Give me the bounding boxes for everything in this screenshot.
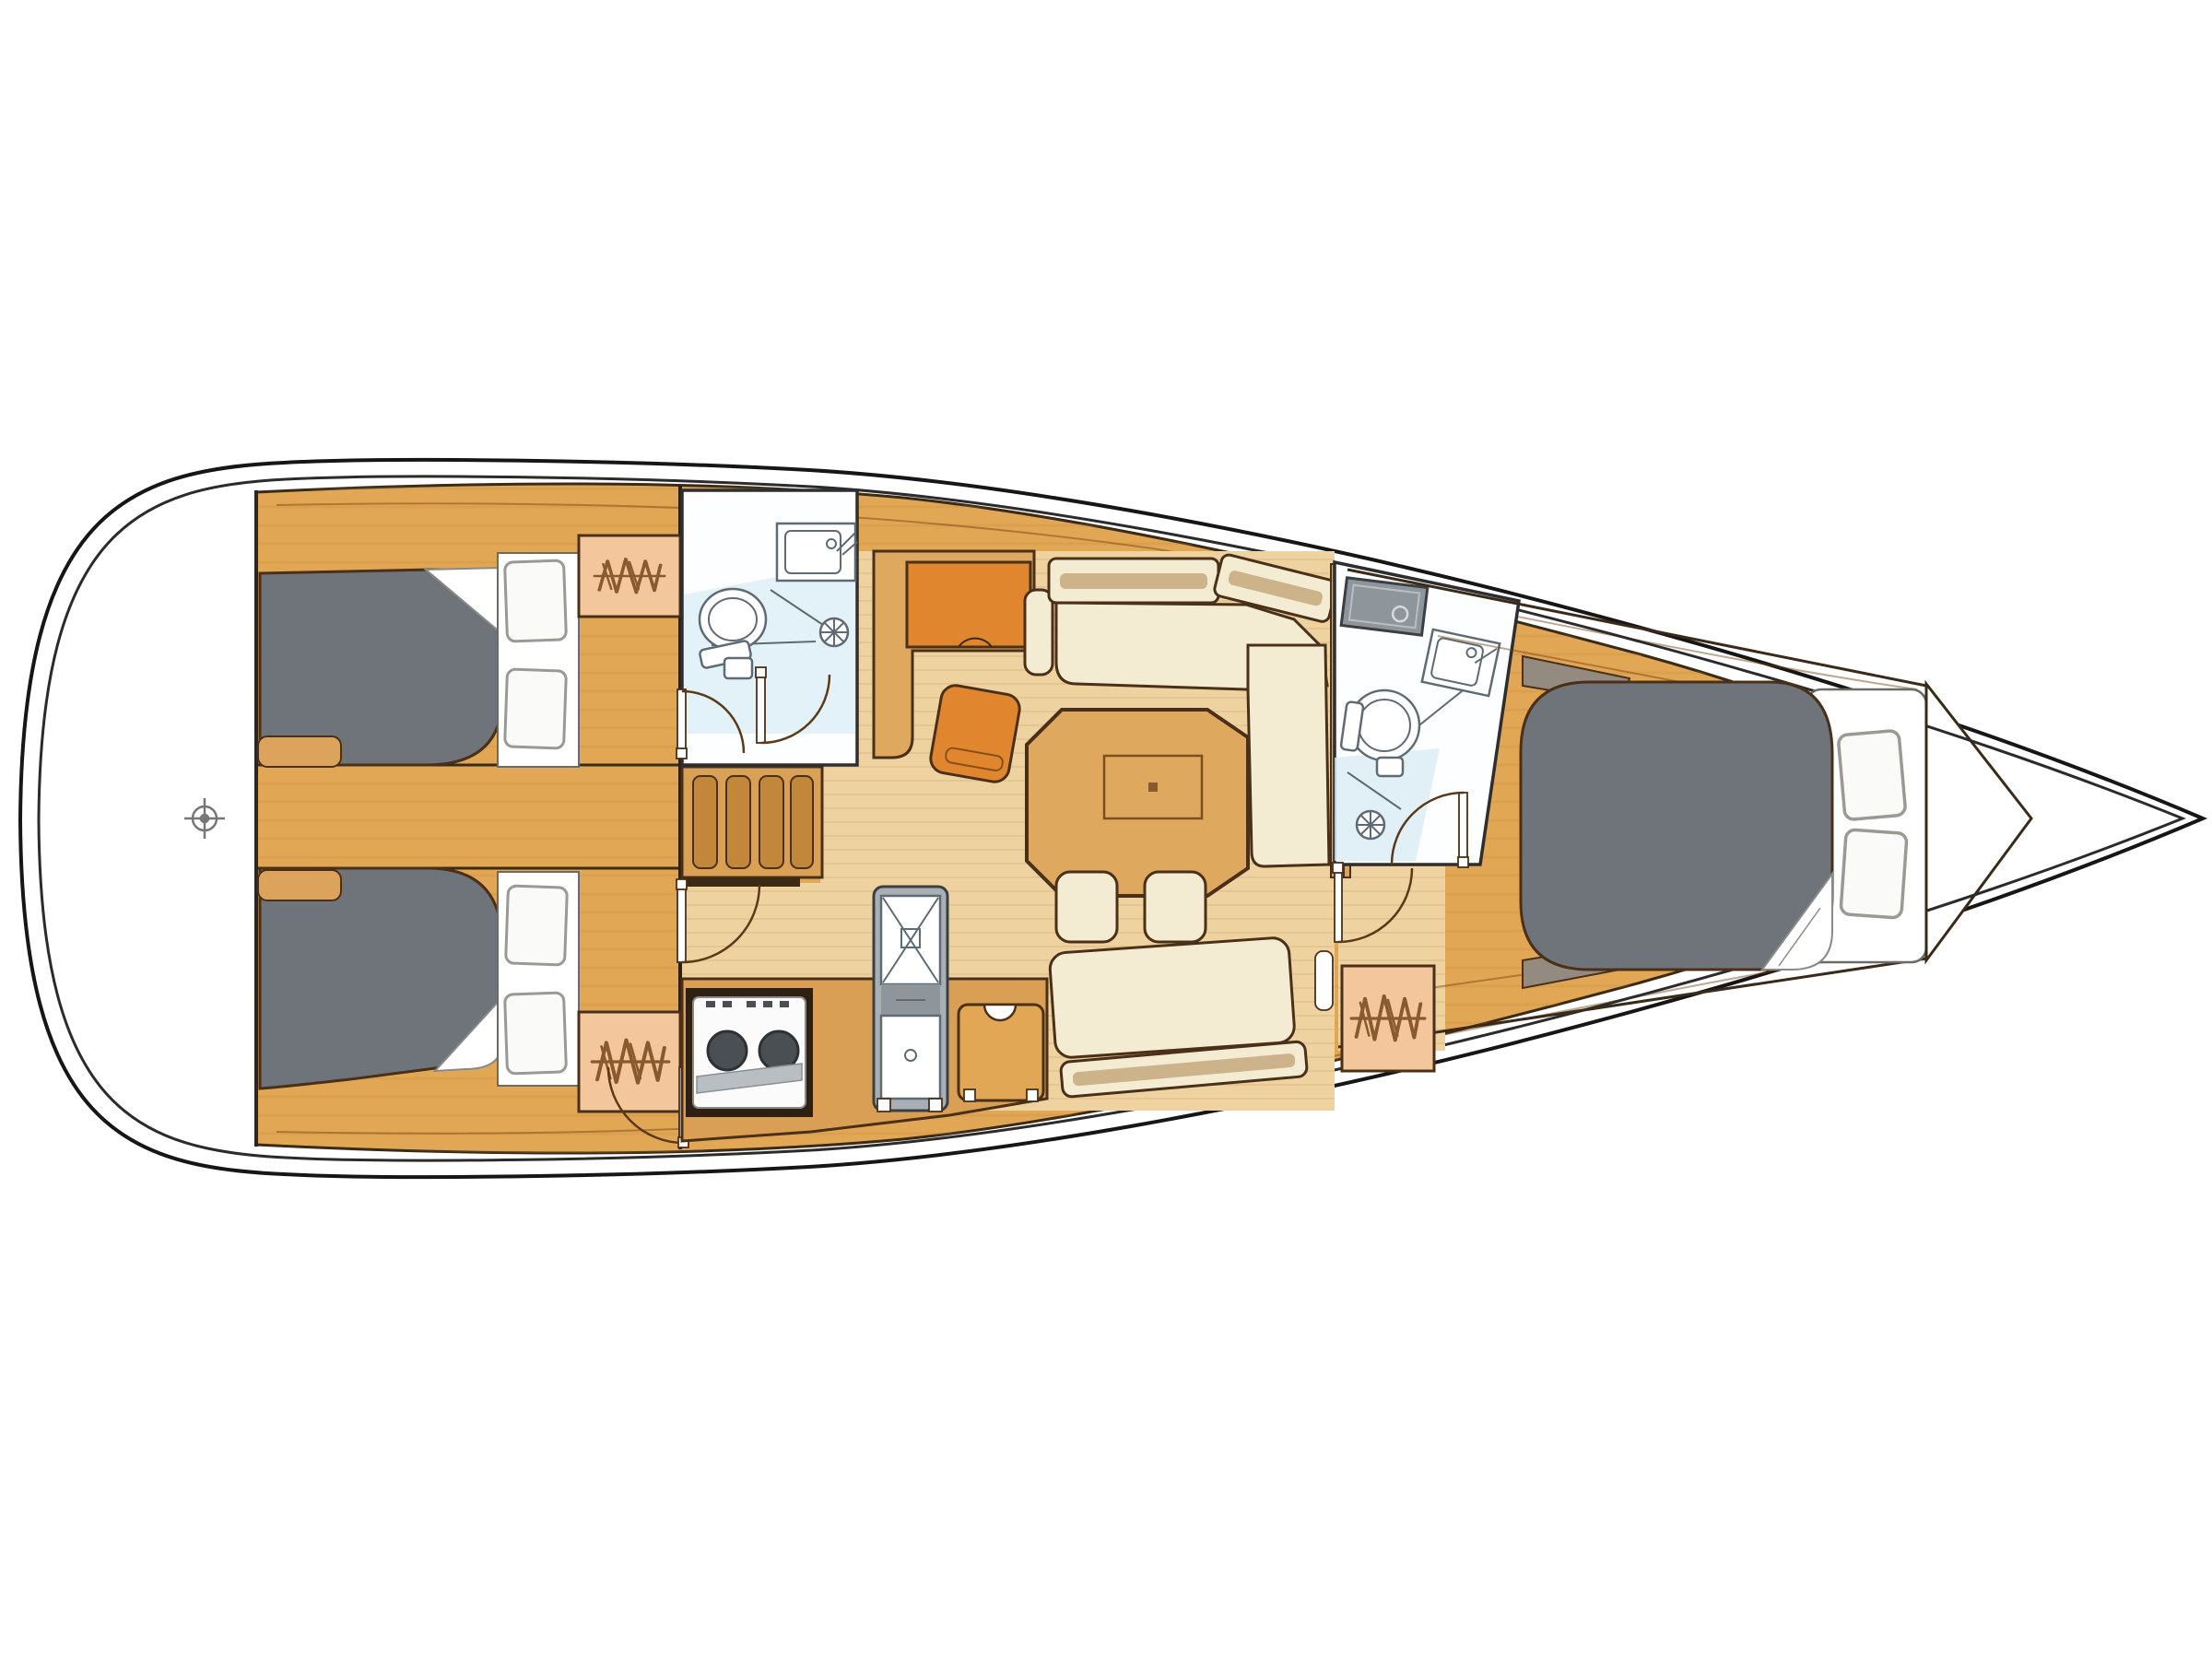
stove bbox=[686, 988, 813, 1117]
pillow bbox=[1841, 829, 1907, 918]
pillow bbox=[506, 886, 568, 965]
saloon-table bbox=[1027, 710, 1248, 896]
forward-berth bbox=[1521, 682, 1832, 970]
hatch-rail bbox=[684, 877, 800, 887]
chart-table bbox=[907, 562, 1030, 647]
fridge bbox=[959, 1005, 1043, 1101]
stair-tread bbox=[726, 776, 750, 868]
pillow bbox=[505, 993, 567, 1074]
starboard-settee bbox=[1049, 937, 1308, 1098]
galley-floor bbox=[682, 883, 876, 979]
burner bbox=[708, 1031, 747, 1070]
stool bbox=[1145, 872, 1206, 942]
pillow bbox=[505, 560, 567, 641]
hanging-locker-aft-port bbox=[579, 535, 680, 617]
counter-sink bbox=[1341, 578, 1428, 635]
sailboat-floor-plan bbox=[0, 0, 2212, 1659]
stair-tread bbox=[693, 776, 717, 868]
pillow bbox=[505, 669, 567, 748]
companionway bbox=[682, 756, 822, 887]
aft-berth-port bbox=[260, 553, 579, 767]
stool bbox=[1056, 872, 1117, 942]
stove-knob bbox=[763, 1001, 772, 1007]
floor-plan-canvas bbox=[0, 0, 2212, 1659]
stove-knob bbox=[706, 1001, 715, 1007]
berth-foot-shelf bbox=[258, 870, 341, 900]
shower-drain bbox=[820, 618, 848, 646]
settee-chaise bbox=[1248, 645, 1329, 866]
stair-tread bbox=[759, 776, 783, 868]
stair-tread bbox=[791, 776, 813, 868]
double-sink bbox=[874, 887, 947, 1112]
nav-seat bbox=[928, 683, 1021, 783]
shower-drain bbox=[1357, 811, 1384, 839]
hanging-locker-forward bbox=[1342, 966, 1434, 1071]
bow-locker bbox=[1926, 684, 2031, 960]
pillow bbox=[1838, 730, 1906, 819]
stove-knob bbox=[723, 1001, 732, 1007]
berth-foot-shelf bbox=[258, 736, 341, 767]
hanging-locker-aft-starboard bbox=[579, 1012, 680, 1112]
stove-knob bbox=[747, 1001, 756, 1007]
stove-knob bbox=[780, 1001, 789, 1007]
washbasin bbox=[777, 524, 857, 581]
settee-armrest bbox=[1025, 590, 1053, 675]
aft-head bbox=[682, 490, 857, 765]
